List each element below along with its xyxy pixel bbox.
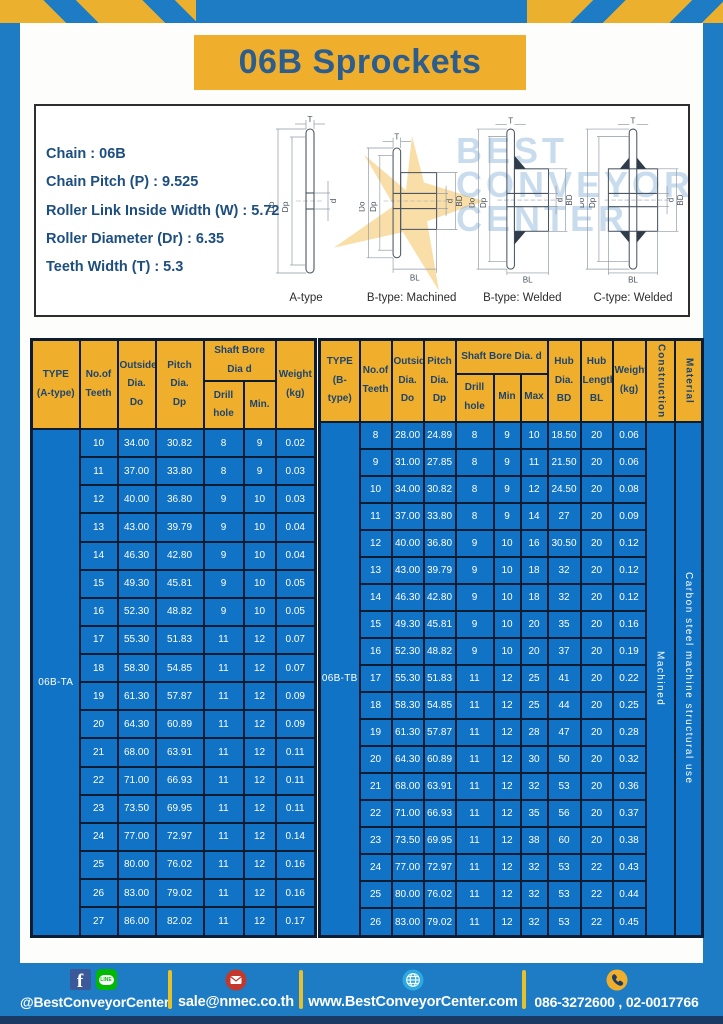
data-cell: 12 (244, 710, 276, 738)
svg-text:Dp: Dp (280, 201, 290, 212)
svg-text:Dp: Dp (369, 201, 378, 212)
table-row: 2580.0076.0211123253220.44 (320, 881, 703, 908)
data-cell: 27 (80, 907, 118, 936)
table-row: 06B-TA1034.0030.82890.02 (32, 429, 316, 457)
data-cell: 20 (581, 719, 613, 746)
data-cell: 25 (521, 692, 548, 719)
data-cell: 12 (494, 908, 521, 936)
data-cell: 11 (456, 800, 494, 827)
data-cell: 35 (521, 800, 548, 827)
data-cell: 42.80 (424, 584, 456, 611)
data-cell: 25 (360, 881, 392, 908)
data-cell: 11 (204, 879, 244, 907)
col-header-construction: Construction (646, 340, 675, 422)
data-cell: 9 (204, 513, 244, 541)
table-row: 2064.3060.8911123050200.32 (320, 746, 703, 773)
data-cell: 23 (80, 795, 118, 823)
data-cell: 0.38 (613, 827, 646, 854)
col-header-min: Min (494, 374, 521, 422)
construction-cell: Machined (646, 422, 675, 937)
content-sheet: 06B Sprockets BESTCONVEYORCENTER Chain :… (20, 23, 703, 963)
data-cell: 11 (456, 908, 494, 936)
data-cell: 63.91 (156, 738, 204, 766)
svg-text:BL: BL (410, 274, 420, 283)
data-cell: 39.79 (156, 513, 204, 541)
data-cell: 11 (521, 449, 548, 476)
data-cell: 0.22 (613, 665, 646, 692)
data-cell: 0.06 (613, 449, 646, 476)
data-cell: 21 (360, 773, 392, 800)
data-cell: 0.32 (613, 746, 646, 773)
data-cell: 12 (80, 485, 118, 513)
data-cell: 66.93 (424, 800, 456, 827)
col-header-drill-hole: Drill hole (456, 374, 494, 422)
data-cell: 27 (548, 503, 581, 530)
data-cell: 0.44 (613, 881, 646, 908)
data-cell: 8 (456, 449, 494, 476)
data-cell: 11 (204, 682, 244, 710)
spec-line: Roller Diameter (Dr) : 6.35 (46, 225, 280, 253)
data-cell: 42.80 (156, 542, 204, 570)
diagram-caption: B-type: Machined (367, 292, 457, 304)
chain-specs: Chain : 06BChain Pitch (P) : 9.525Roller… (46, 140, 280, 281)
table-row: 06B-TB828.0024.89891018.50200.06Machined… (320, 422, 703, 449)
svg-text:d: d (667, 198, 676, 202)
table-row: 1034.0030.82891224.50200.08 (320, 476, 703, 503)
svg-text:BD: BD (565, 194, 574, 205)
data-cell: 37.00 (118, 457, 156, 485)
data-cell: 20 (581, 692, 613, 719)
hazard-stripes-right (527, 0, 723, 23)
diagram-c-type-welded: T Do Dp d BD (580, 111, 686, 311)
data-cell: 20 (80, 710, 118, 738)
footer-phone[interactable]: 086-3272600 , 02-0017766 (530, 967, 703, 1010)
data-cell: 76.02 (156, 851, 204, 879)
data-cell: 31.00 (392, 449, 424, 476)
spec-line: Chain Pitch (P) : 9.525 (46, 168, 280, 196)
data-cell: 22 (581, 908, 613, 936)
data-cell: 80.00 (392, 881, 424, 908)
data-cell: 18 (80, 654, 118, 682)
data-cell: 9 (456, 611, 494, 638)
b-type-welded-drawing: T Do Dp d BD (469, 111, 575, 291)
svg-text:BL: BL (523, 275, 533, 284)
data-cell: 20 (581, 584, 613, 611)
data-cell: 53 (548, 881, 581, 908)
data-cell: 26 (360, 908, 392, 936)
data-cell: 28 (521, 719, 548, 746)
data-cell: 26 (80, 879, 118, 907)
data-cell: 20 (521, 611, 548, 638)
data-cell: 54.85 (156, 654, 204, 682)
material-cell: Carbon steel machine structural use (675, 422, 703, 937)
data-cell: 64.30 (118, 710, 156, 738)
svg-text:d: d (445, 199, 454, 203)
svg-text:d: d (328, 198, 338, 203)
data-cell: 9 (204, 598, 244, 626)
data-cell: 41 (548, 665, 581, 692)
data-cell: 12 (244, 654, 276, 682)
data-cell: 38 (521, 827, 548, 854)
data-cell: 25 (521, 665, 548, 692)
spec-tables: TYPE (A-type) No.of Teeth Outside Dia. D… (20, 338, 703, 938)
data-cell: 0.05 (276, 598, 316, 626)
table-row: 1858.3054.8511122544200.25 (320, 692, 703, 719)
svg-text:Dp: Dp (588, 197, 597, 208)
table-row: 1549.3045.819102035200.16 (320, 611, 703, 638)
data-cell: 61.30 (392, 719, 424, 746)
data-cell: 9 (204, 485, 244, 513)
data-cell: 20 (581, 773, 613, 800)
data-cell: 0.19 (613, 638, 646, 665)
data-cell: 0.02 (276, 429, 316, 457)
footer-divider (168, 970, 172, 1009)
data-cell: 52.30 (118, 598, 156, 626)
data-cell: 20 (581, 827, 613, 854)
data-cell: 60.89 (424, 746, 456, 773)
globe-icon (402, 969, 424, 991)
data-cell: 14 (80, 542, 118, 570)
diagram-caption: B-type: Welded (483, 292, 561, 304)
data-cell: 45.81 (156, 570, 204, 598)
data-cell: 53 (548, 773, 581, 800)
data-cell: 39.79 (424, 557, 456, 584)
data-cell: 72.97 (156, 823, 204, 851)
data-cell: 9 (360, 449, 392, 476)
data-cell: 22 (360, 800, 392, 827)
data-cell: 0.12 (613, 530, 646, 557)
data-cell: 0.09 (276, 710, 316, 738)
data-cell: 0.07 (276, 654, 316, 682)
data-cell: 8 (204, 457, 244, 485)
data-cell: 12 (494, 800, 521, 827)
website-url: www.BestConveyorCenter.com (307, 994, 519, 1010)
data-cell: 0.28 (613, 719, 646, 746)
data-cell: 13 (360, 557, 392, 584)
svg-text:T: T (394, 132, 399, 141)
data-cell: 20 (581, 476, 613, 503)
data-cell: 32 (521, 908, 548, 936)
hazard-stripes-left (0, 0, 196, 23)
data-cell: 14 (360, 584, 392, 611)
table-row: 931.0027.85891121.50200.06 (320, 449, 703, 476)
data-cell: 9 (494, 503, 521, 530)
data-cell: 0.03 (276, 485, 316, 513)
svg-text:T: T (631, 116, 636, 125)
table-a-type: TYPE (A-type) No.of Teeth Outside Dia. D… (30, 338, 317, 938)
data-cell: 0.16 (613, 611, 646, 638)
data-cell: 11 (204, 851, 244, 879)
data-cell: 24 (360, 854, 392, 881)
data-cell: 9 (494, 422, 521, 449)
data-cell: 12 (494, 854, 521, 881)
data-cell: 11 (204, 626, 244, 654)
data-cell: 8 (456, 422, 494, 449)
data-cell: 54.85 (424, 692, 456, 719)
data-cell: 19 (80, 682, 118, 710)
data-cell: 0.43 (613, 854, 646, 881)
data-cell: 53 (548, 854, 581, 881)
data-cell: 11 (204, 823, 244, 851)
col-header-shaft-bore: Shaft Bore Dia d (204, 340, 276, 382)
data-cell: 8 (360, 422, 392, 449)
data-cell: 11 (204, 738, 244, 766)
col-header-pitch-dia: Pitch Dia. Dp (424, 340, 456, 422)
diagram-b-type-welded: T Do Dp d BD (469, 111, 575, 311)
data-cell: 0.25 (613, 692, 646, 719)
sprocket-diagrams: T Do Dp d A-type (258, 111, 686, 311)
data-cell: 0.11 (276, 738, 316, 766)
data-cell: 49.30 (392, 611, 424, 638)
data-cell: 11 (456, 692, 494, 719)
data-cell: 20 (581, 746, 613, 773)
data-cell: 64.30 (392, 746, 424, 773)
data-cell: 10 (494, 584, 521, 611)
c-type-welded-drawing: T Do Dp d BD (580, 111, 686, 291)
data-cell: 20 (581, 422, 613, 449)
col-header-shaft-bore: Shaft Bore Dia. d (456, 340, 548, 374)
data-cell: 0.11 (276, 795, 316, 823)
data-cell: 10 (80, 429, 118, 457)
data-cell: 32 (548, 557, 581, 584)
data-cell: 34.00 (392, 476, 424, 503)
svg-text:Do: Do (359, 201, 367, 212)
data-cell: 15 (360, 611, 392, 638)
data-cell: 10 (521, 422, 548, 449)
data-cell: 49.30 (118, 570, 156, 598)
table-row: 1652.3048.829102037200.19 (320, 638, 703, 665)
data-cell: 11 (456, 746, 494, 773)
data-cell: 18 (360, 692, 392, 719)
data-cell: 44 (548, 692, 581, 719)
drawing-panel: BESTCONVEYORCENTER Chain : 06BChain Pitc… (34, 104, 690, 317)
data-cell: 20 (521, 638, 548, 665)
data-cell: 20 (581, 638, 613, 665)
data-cell: 0.16 (276, 851, 316, 879)
data-cell: 0.17 (276, 907, 316, 936)
data-cell: 83.00 (118, 879, 156, 907)
data-cell: 37.00 (392, 503, 424, 530)
data-cell: 11 (456, 881, 494, 908)
spec-line: Roller Link Inside Width (W) : 5.72 (46, 197, 280, 225)
data-cell: 43.00 (118, 513, 156, 541)
data-cell: 12 (244, 795, 276, 823)
data-cell: 66.93 (156, 767, 204, 795)
data-cell: 10 (494, 638, 521, 665)
diagram-caption: A-type (289, 292, 322, 304)
data-cell: 77.00 (118, 823, 156, 851)
data-cell: 28.00 (392, 422, 424, 449)
col-header-hub-length: Hub Length BL (581, 340, 613, 422)
data-cell: 71.00 (392, 800, 424, 827)
svg-text:Do: Do (469, 197, 477, 208)
table-row: 2373.5069.9511123860200.38 (320, 827, 703, 854)
data-cell: 0.04 (276, 513, 316, 541)
col-header-min: Min. (244, 381, 276, 429)
data-cell: 25 (80, 851, 118, 879)
data-cell: 60.89 (156, 710, 204, 738)
col-header-pitch-dia: Pitch Dia. Dp (156, 340, 204, 430)
data-cell: 0.37 (613, 800, 646, 827)
data-cell: 57.87 (156, 682, 204, 710)
table-row: 1446.3042.809101832200.12 (320, 584, 703, 611)
data-cell: 12 (494, 773, 521, 800)
data-cell: 0.36 (613, 773, 646, 800)
data-cell: 57.87 (424, 719, 456, 746)
svg-text:BD: BD (455, 195, 464, 206)
spec-line: Chain : 06B (46, 140, 280, 168)
data-cell: 55.30 (118, 626, 156, 654)
spec-line: Teeth Width (T) : 5.3 (46, 253, 280, 281)
data-cell: 32 (521, 773, 548, 800)
col-header-teeth: No.of Teeth (360, 340, 392, 422)
table-row: 2271.0066.9311123556200.37 (320, 800, 703, 827)
data-cell: 18 (521, 557, 548, 584)
data-cell: 0.11 (276, 767, 316, 795)
data-cell: 36.80 (424, 530, 456, 557)
data-cell: 68.00 (118, 738, 156, 766)
data-cell: 60 (548, 827, 581, 854)
data-cell: 17 (80, 626, 118, 654)
email-icon (225, 969, 247, 991)
col-header-weight: Weight (kg) (613, 340, 646, 422)
data-cell: 10 (244, 598, 276, 626)
data-cell: 52.30 (392, 638, 424, 665)
data-cell: 15 (80, 570, 118, 598)
data-cell: 20 (581, 449, 613, 476)
data-cell: 73.50 (118, 795, 156, 823)
data-cell: 0.09 (276, 682, 316, 710)
data-cell: 0.12 (613, 584, 646, 611)
data-cell: 11 (360, 503, 392, 530)
footer-website[interactable]: www.BestConveyorCenter.com (307, 967, 519, 1010)
data-cell: 71.00 (118, 767, 156, 795)
data-cell: 40.00 (118, 485, 156, 513)
data-cell: 12 (244, 767, 276, 795)
data-cell: 20 (581, 503, 613, 530)
data-cell: 23 (360, 827, 392, 854)
svg-text:Do: Do (580, 197, 586, 208)
table-b-type: TYPE (B-type) No.of Teeth Outside Dia. D… (318, 338, 704, 938)
data-cell: 22 (80, 767, 118, 795)
col-header-max: Max (521, 374, 548, 422)
data-cell: 9 (456, 530, 494, 557)
footer-email[interactable]: sale@nmec.co.th (176, 967, 296, 1010)
data-cell: 68.00 (392, 773, 424, 800)
data-cell: 37 (548, 638, 581, 665)
data-cell: 0.07 (276, 626, 316, 654)
data-cell: 24.89 (424, 422, 456, 449)
data-cell: 32 (521, 854, 548, 881)
data-cell: 79.02 (156, 879, 204, 907)
data-cell: 36.80 (156, 485, 204, 513)
data-cell: 0.12 (613, 557, 646, 584)
footer-divider (522, 970, 526, 1009)
data-cell: 58.30 (118, 654, 156, 682)
col-header-hub-dia: Hub Dia. BD (548, 340, 581, 422)
data-cell: 11 (204, 767, 244, 795)
data-cell: 0.06 (613, 422, 646, 449)
data-cell: 10 (244, 570, 276, 598)
data-cell: 16 (80, 598, 118, 626)
data-cell: 32 (548, 584, 581, 611)
facebook-icon: f (70, 969, 91, 990)
data-cell: 11 (456, 773, 494, 800)
data-cell: 45.81 (424, 611, 456, 638)
diagram-b-type-machined: T Do Dp d BD (359, 111, 465, 311)
data-cell: 10 (244, 542, 276, 570)
page-title: 06B Sprockets (239, 43, 482, 82)
data-cell: 86.00 (118, 907, 156, 936)
data-cell: 12 (494, 827, 521, 854)
diagram-caption: C-type: Welded (593, 292, 672, 304)
data-cell: 11 (456, 665, 494, 692)
data-cell: 20 (581, 611, 613, 638)
data-cell: 58.30 (392, 692, 424, 719)
data-cell: 20 (581, 665, 613, 692)
data-cell: 16 (521, 530, 548, 557)
data-cell: 13 (80, 513, 118, 541)
data-cell: 0.45 (613, 908, 646, 936)
data-cell: 11 (456, 719, 494, 746)
data-cell: 12 (244, 851, 276, 879)
title-banner: 06B Sprockets (194, 35, 526, 90)
data-cell: 46.30 (118, 542, 156, 570)
table-row: 1755.3051.8311122541200.22 (320, 665, 703, 692)
data-cell: 0.03 (276, 457, 316, 485)
data-cell: 35 (548, 611, 581, 638)
data-cell: 32 (521, 881, 548, 908)
data-cell: 12 (494, 692, 521, 719)
data-cell: 63.91 (424, 773, 456, 800)
catalog-page: 06B Sprockets BESTCONVEYORCENTER Chain :… (0, 0, 723, 1024)
data-cell: 53 (548, 908, 581, 936)
footer-social[interactable]: f LINE @BestConveyorCenter (20, 967, 166, 1010)
data-cell: 33.80 (156, 457, 204, 485)
data-cell: 79.02 (424, 908, 456, 936)
svg-text:d: d (556, 198, 565, 202)
data-cell: 12 (494, 881, 521, 908)
data-cell: 12 (244, 823, 276, 851)
data-cell: 48.82 (424, 638, 456, 665)
table-row: 1343.0039.799101832200.12 (320, 557, 703, 584)
data-cell: 10 (494, 557, 521, 584)
data-cell: 11 (456, 854, 494, 881)
data-cell: 24.50 (548, 476, 581, 503)
data-cell: 22 (581, 854, 613, 881)
data-cell: 11 (456, 827, 494, 854)
data-cell: 18 (521, 584, 548, 611)
line-icon: LINE (96, 969, 117, 990)
col-header-material: Material (675, 340, 703, 422)
data-cell: 10 (244, 485, 276, 513)
data-cell: 61.30 (118, 682, 156, 710)
svg-text:Dp: Dp (479, 197, 488, 208)
data-cell: 30.50 (548, 530, 581, 557)
data-cell: 9 (204, 570, 244, 598)
table-row: 2477.0072.9711123253220.43 (320, 854, 703, 881)
data-cell: 9 (456, 584, 494, 611)
data-cell: 12 (494, 719, 521, 746)
phone-numbers: 086-3272600 , 02-0017766 (530, 994, 703, 1010)
col-header-type: TYPE (B-type) (320, 340, 360, 422)
data-cell: 76.02 (424, 881, 456, 908)
data-cell: 12 (494, 665, 521, 692)
data-cell: 12 (494, 746, 521, 773)
col-header-type: TYPE (A-type) (32, 340, 80, 430)
table-row: 1240.0036.809101630.50200.12 (320, 530, 703, 557)
data-cell: 11 (204, 654, 244, 682)
